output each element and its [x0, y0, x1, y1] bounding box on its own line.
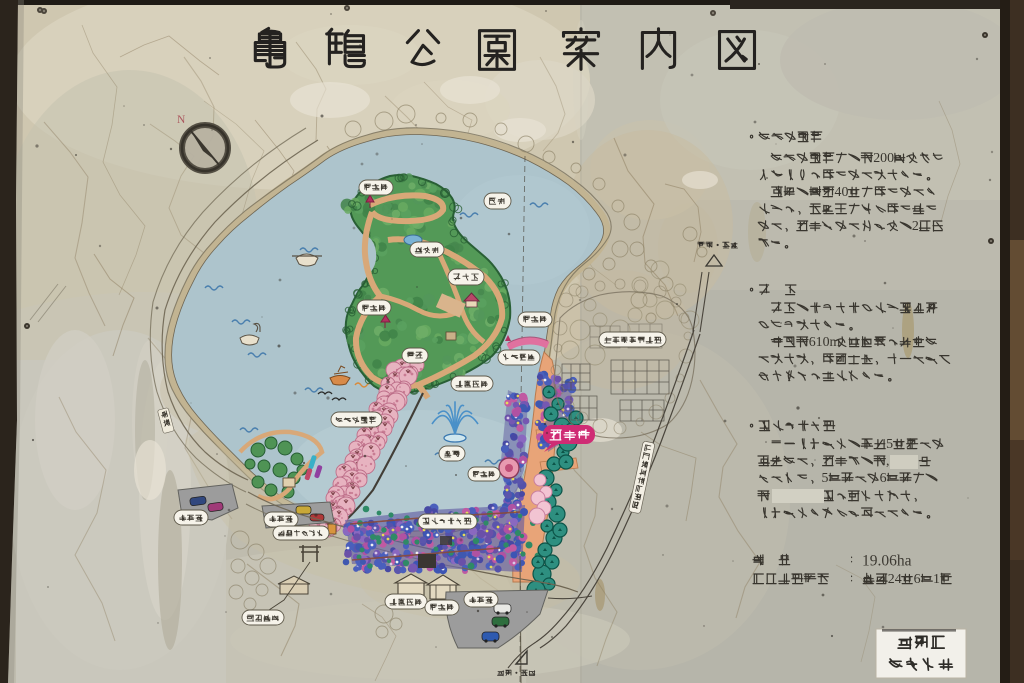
svg-text:2: 2	[912, 219, 919, 234]
svg-text:19.06ha: 19.06ha	[862, 553, 912, 570]
svg-text:6: 6	[914, 572, 921, 587]
svg-text:6: 6	[880, 471, 887, 486]
svg-text:5: 5	[822, 471, 829, 486]
svg-text:N: N	[177, 114, 186, 126]
svg-text:5: 5	[886, 437, 893, 452]
svg-text:40: 40	[835, 185, 849, 200]
svg-text:610m: 610m	[809, 335, 841, 350]
svg-text:200: 200	[873, 151, 894, 166]
svg-text:24: 24	[888, 572, 902, 587]
svg-text:1: 1	[933, 572, 940, 587]
